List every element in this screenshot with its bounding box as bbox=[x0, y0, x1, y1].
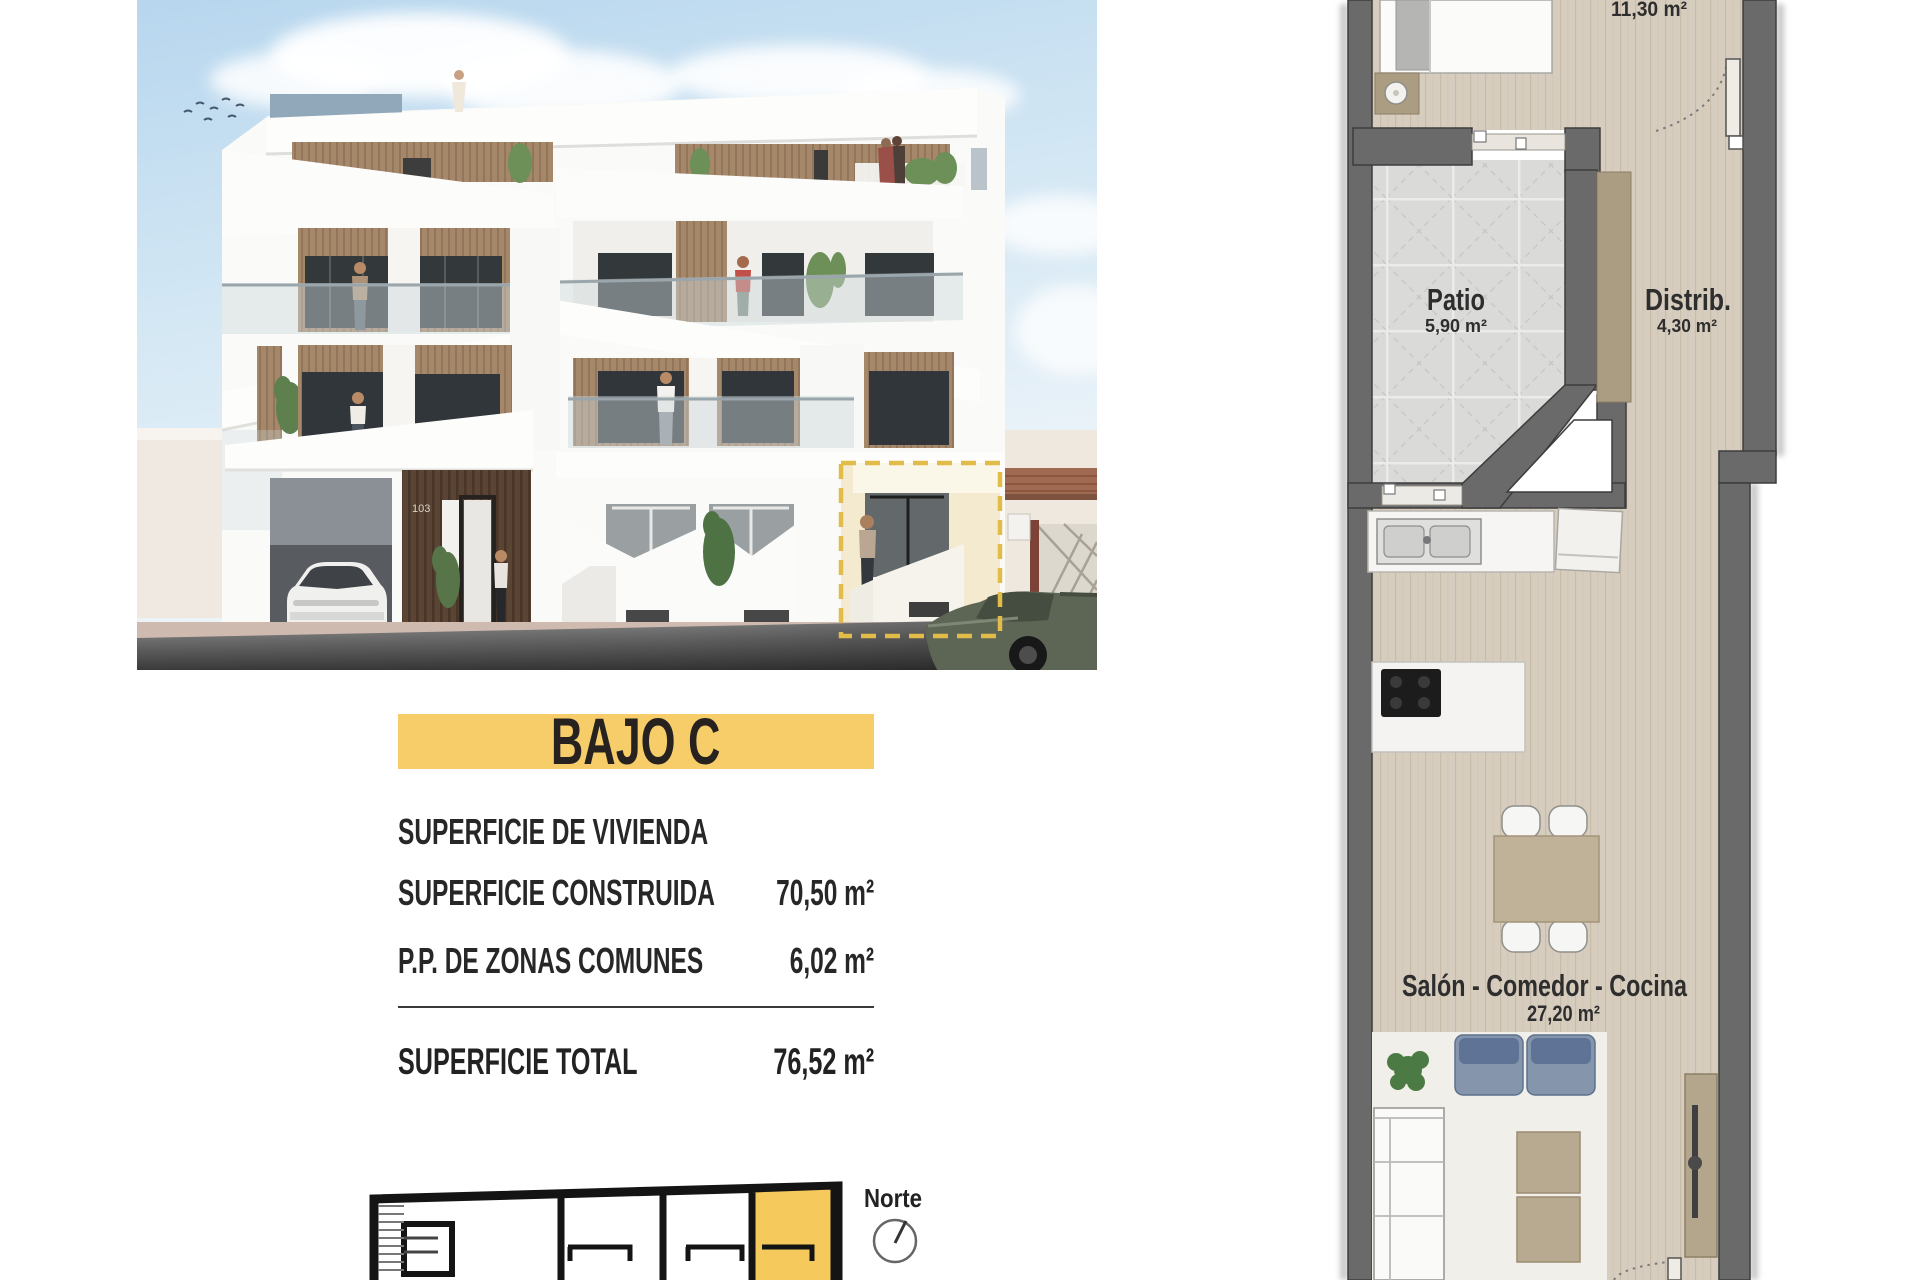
svg-text:11,30 m²: 11,30 m² bbox=[1611, 0, 1687, 21]
svg-text:Norte: Norte bbox=[864, 1183, 922, 1213]
svg-text:103: 103 bbox=[412, 503, 430, 515]
svg-text:Salón - Comedor - Cocina: Salón - Comedor - Cocina bbox=[1402, 968, 1688, 1003]
svg-text:27,20 m²: 27,20 m² bbox=[1527, 1001, 1600, 1026]
svg-text:5,90 m²: 5,90 m² bbox=[1425, 316, 1487, 336]
svg-text:4,30 m²: 4,30 m² bbox=[1657, 316, 1717, 336]
svg-text:Distrib.: Distrib. bbox=[1645, 282, 1731, 317]
svg-text:Patio: Patio bbox=[1427, 282, 1485, 317]
